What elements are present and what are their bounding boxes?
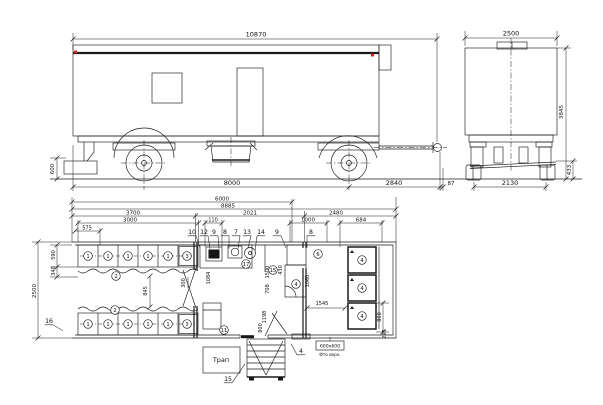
- callout-number: 16: [45, 318, 53, 325]
- dimension-label: 300: [181, 278, 187, 288]
- callout-leader: [53, 325, 63, 331]
- dimension-label: 1545: [316, 301, 329, 307]
- dimension-label: 2021: [243, 211, 257, 217]
- item-number: 1: [146, 254, 149, 260]
- item-number: 6: [316, 252, 319, 258]
- dimension-label: 10870: [246, 31, 267, 39]
- entrance-door-swing: [265, 311, 287, 336]
- note-label: Трап: [212, 356, 229, 364]
- lower-cabinet: [203, 303, 221, 329]
- dimension-label: 340: [51, 266, 57, 276]
- dimension-label: 8885: [221, 204, 235, 210]
- dimension-label: 430: [278, 265, 284, 275]
- dimension-label: 800: [258, 323, 264, 333]
- sink: [228, 246, 242, 258]
- red-marker-rear: [371, 54, 374, 57]
- callout-number: 10: [188, 229, 196, 236]
- dimension-label: 2500: [32, 284, 38, 298]
- dimension-label: 110: [208, 218, 218, 224]
- dimension-label: 2840: [386, 179, 403, 187]
- callout-number: 4: [299, 348, 303, 355]
- dimension-label: 1198: [262, 311, 268, 324]
- item-number: 1: [126, 322, 129, 328]
- cad-canvas: 1087080002840876002500384543321306000888…: [0, 0, 603, 405]
- dimension-label: 800: [377, 312, 383, 322]
- callout-number: 9: [275, 229, 279, 236]
- drawbar-hitch: [374, 142, 447, 153]
- dimension-label: 1060: [305, 275, 311, 288]
- callout-number: 14: [257, 229, 265, 236]
- item-number: 3: [185, 322, 188, 328]
- side-door: [237, 68, 263, 136]
- callout-leader: [255, 236, 257, 251]
- item-number: 1: [106, 254, 109, 260]
- side-window: [152, 73, 182, 103]
- dimension-label: 1084: [206, 272, 212, 285]
- trailer-body: [73, 45, 391, 136]
- dimension-label: 295: [382, 329, 388, 339]
- item-number: 1: [146, 322, 149, 328]
- item-number: 11: [221, 328, 228, 334]
- dimension-label: 87: [448, 181, 455, 187]
- item-number: 2: [113, 308, 116, 314]
- dimension-label: 3000: [123, 218, 137, 224]
- dim-overall-length: [71, 33, 440, 142]
- front-wheel: [114, 128, 174, 190]
- rear-wheel: [319, 136, 377, 190]
- bench-bottom-row: [78, 307, 198, 335]
- dimension-label: 3845: [559, 105, 565, 119]
- dimension-label: 2500: [503, 30, 520, 38]
- boiler: [245, 248, 256, 259]
- item-number: 3: [185, 254, 188, 260]
- roof-box: [379, 45, 391, 70]
- rear-mudguard: [319, 136, 377, 158]
- callout-number: 7: [234, 229, 238, 236]
- item-number: 1: [166, 254, 169, 260]
- item-number: 1: [86, 322, 89, 328]
- callout-number: 9: [212, 229, 216, 236]
- coat-hook-rail-bottom: [78, 307, 198, 311]
- entrance-steps: [247, 339, 285, 381]
- threshold: [241, 335, 254, 338]
- dimension-label: 575: [82, 226, 92, 232]
- end-body: [465, 38, 557, 172]
- dimension-label: 433: [567, 164, 573, 175]
- item-number: 2: [114, 274, 117, 280]
- dimension-label: 590: [51, 250, 57, 260]
- dimension-label: 845: [143, 286, 149, 296]
- drawing-sheet: 1087080002840876002500384543321306000888…: [0, 0, 603, 405]
- item-number: 1: [126, 254, 129, 260]
- item-number: 17: [243, 262, 250, 268]
- item-number: 1: [166, 322, 169, 328]
- dimension-label: 2130: [502, 179, 519, 187]
- item-number: 1: [106, 322, 109, 328]
- callout-number: 8: [223, 229, 227, 236]
- red-marker-front: [74, 51, 77, 54]
- note-label: 600х600: [320, 344, 340, 350]
- item-number: 15: [270, 268, 277, 274]
- dimension-label: 8000: [224, 179, 241, 187]
- callout-number: 13: [243, 229, 251, 236]
- callout-leader: [291, 344, 297, 355]
- dimension-label: 1000: [301, 218, 315, 224]
- note-label: Фто верх.: [319, 352, 340, 357]
- side-elevation-view: [50, 33, 447, 191]
- front-support-leg: [84, 142, 94, 161]
- underfloor-box: [205, 137, 257, 167]
- dimension-label: 600: [50, 163, 56, 174]
- callout-number: 8: [309, 229, 313, 236]
- dimension-label: 684: [356, 218, 367, 224]
- item-number: 1: [86, 254, 89, 260]
- dimension-label: 3700: [126, 211, 140, 217]
- bench-top-row: [78, 245, 198, 273]
- callout-number: 15: [224, 376, 232, 383]
- coat-hook-rail-top: [78, 269, 198, 273]
- dimension-label: 2480: [329, 211, 343, 217]
- front-bumper-step: [64, 161, 97, 174]
- dimension-label: 708: [265, 284, 271, 294]
- callout-number: 12: [200, 229, 208, 236]
- dimension-label: 6000: [215, 197, 229, 203]
